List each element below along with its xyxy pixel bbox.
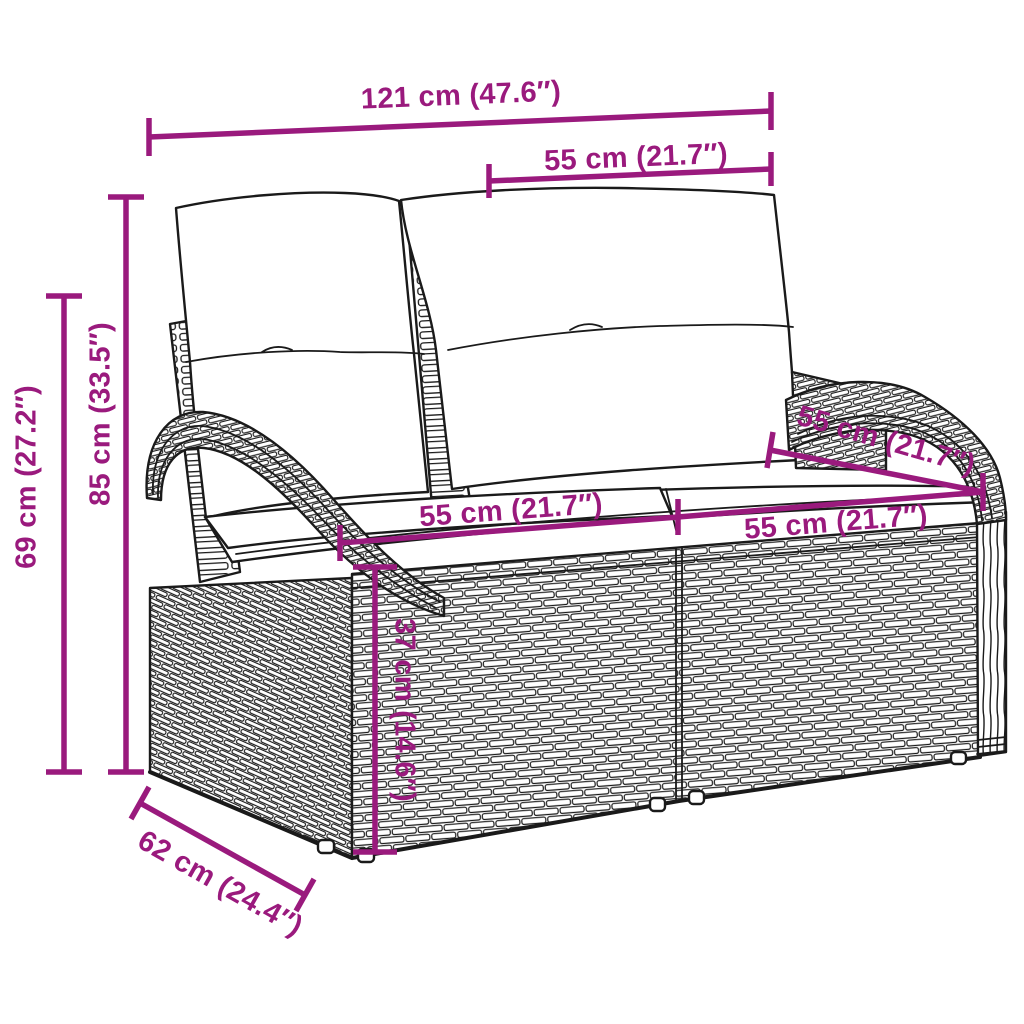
armrest-right-face bbox=[977, 512, 1006, 756]
dim-label-seat-height: 37 cm (14.6″) bbox=[390, 618, 419, 802]
foot bbox=[650, 798, 665, 811]
back-cushion-right bbox=[401, 188, 800, 489]
back-cushion-right-body bbox=[401, 188, 800, 489]
dim-label-total-height: 85 cm (33.5″) bbox=[87, 322, 116, 506]
foot bbox=[951, 752, 966, 764]
dim-label-arm-height: 69 cm (27.2″) bbox=[13, 385, 42, 569]
foot bbox=[318, 840, 334, 853]
dimension-diagram: 121 cm (47.6″) 55 cm (21.7″) 85 cm (33.5… bbox=[0, 0, 1024, 1024]
dim-line-arm-height bbox=[46, 296, 82, 772]
base-box bbox=[150, 523, 980, 858]
foot bbox=[689, 791, 704, 804]
